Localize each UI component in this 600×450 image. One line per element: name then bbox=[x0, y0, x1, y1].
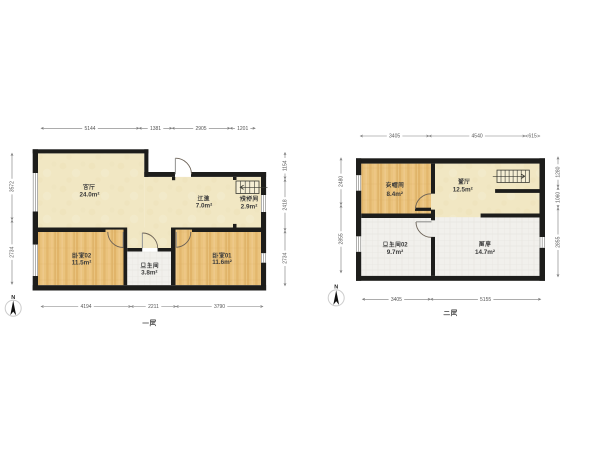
svg-text:1381: 1381 bbox=[150, 126, 161, 132]
svg-text:3572: 3572 bbox=[10, 181, 16, 192]
svg-text:2734: 2734 bbox=[10, 246, 16, 257]
svg-text:2418: 2418 bbox=[283, 199, 289, 210]
svg-text:2211: 2211 bbox=[148, 304, 159, 310]
svg-text:8.4m²: 8.4m² bbox=[386, 191, 402, 198]
svg-text:1154: 1154 bbox=[283, 160, 289, 171]
svg-text:11.5m²: 11.5m² bbox=[72, 260, 92, 267]
svg-text:4194: 4194 bbox=[80, 304, 91, 310]
svg-text:2855: 2855 bbox=[556, 236, 562, 247]
svg-text:7.0m²: 7.0m² bbox=[196, 203, 212, 210]
svg-text:24.0m²: 24.0m² bbox=[80, 192, 100, 199]
svg-text:3405: 3405 bbox=[391, 297, 402, 303]
svg-text:11.6m²: 11.6m² bbox=[212, 259, 232, 266]
svg-text:2905: 2905 bbox=[195, 126, 206, 132]
svg-text:2480: 2480 bbox=[339, 176, 345, 187]
svg-text:N: N bbox=[11, 295, 15, 301]
svg-text:5144: 5144 bbox=[84, 126, 95, 132]
svg-text:4540: 4540 bbox=[472, 134, 483, 140]
svg-text:2855: 2855 bbox=[339, 233, 345, 244]
svg-text:3.8m²: 3.8m² bbox=[141, 270, 157, 277]
svg-text:12.5m²: 12.5m² bbox=[453, 187, 473, 194]
svg-text:2.9m²: 2.9m² bbox=[241, 203, 258, 210]
svg-text:3405: 3405 bbox=[389, 134, 400, 140]
svg-text:1201: 1201 bbox=[237, 126, 248, 132]
svg-text:615: 615 bbox=[528, 134, 537, 140]
svg-text:9.7m²: 9.7m² bbox=[387, 249, 403, 256]
svg-text:1060: 1060 bbox=[556, 192, 562, 203]
svg-text:14.7m²: 14.7m² bbox=[475, 249, 495, 256]
svg-text:5155: 5155 bbox=[480, 297, 491, 303]
svg-text:3790: 3790 bbox=[214, 304, 225, 310]
svg-text:N: N bbox=[334, 285, 338, 291]
svg-text:1280: 1280 bbox=[556, 166, 562, 177]
svg-text:2734: 2734 bbox=[283, 252, 289, 263]
svg-text:02: 02 bbox=[401, 243, 408, 249]
